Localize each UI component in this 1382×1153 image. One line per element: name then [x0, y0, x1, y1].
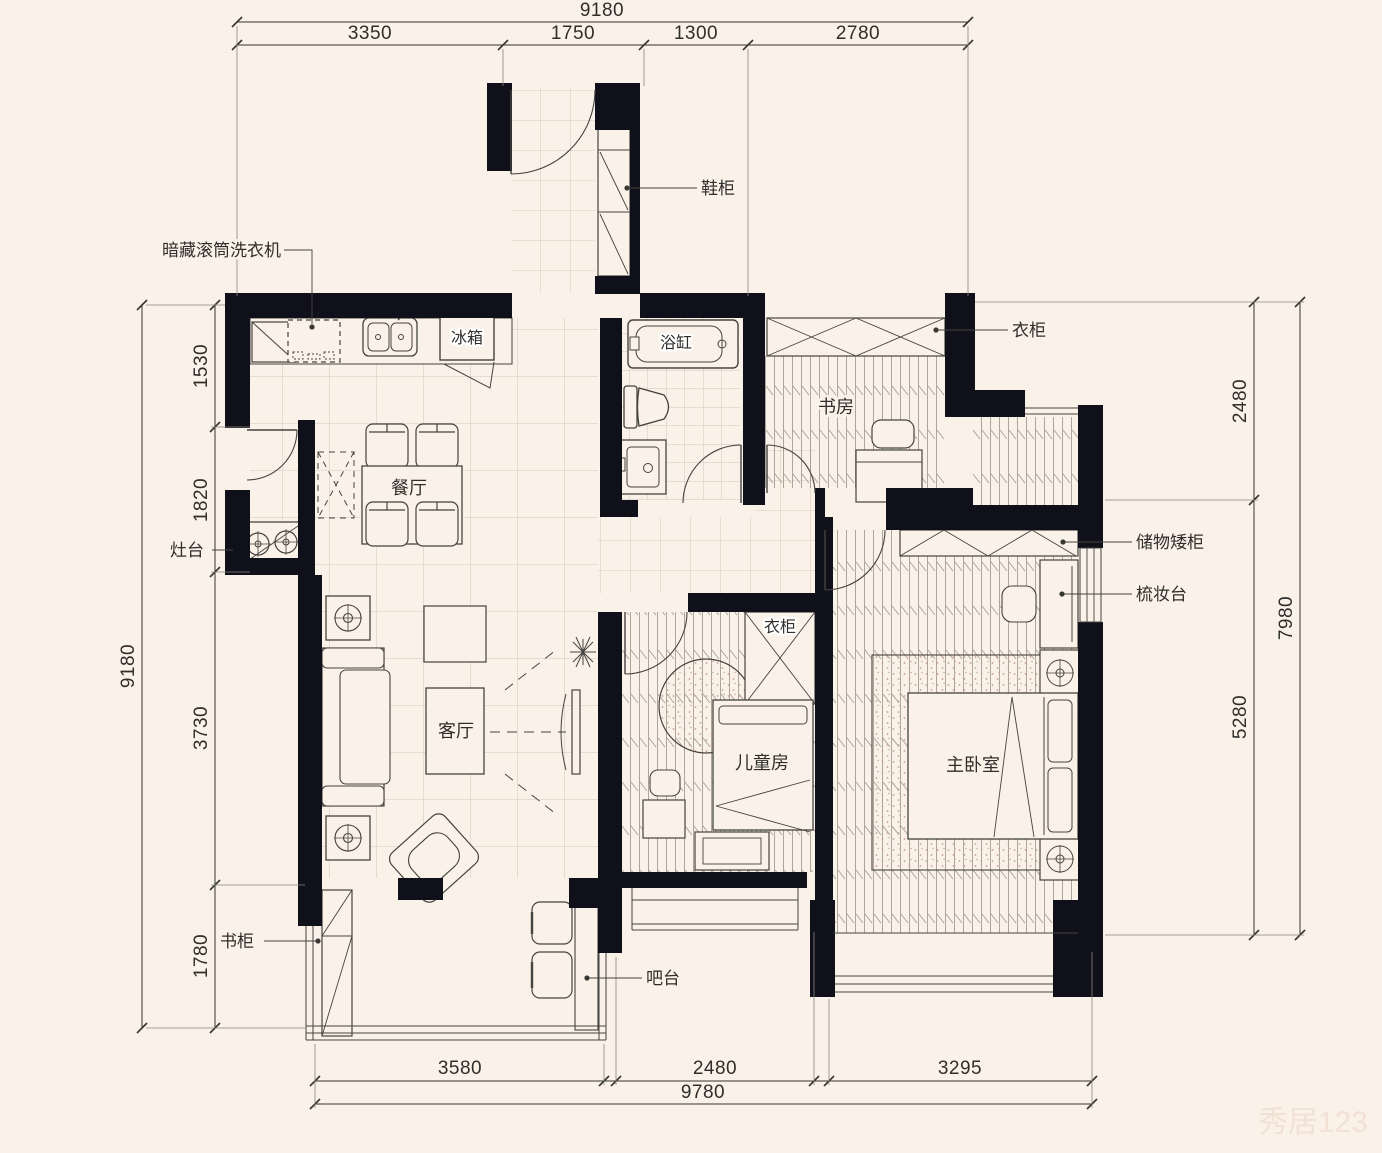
dressing-stool — [1002, 586, 1036, 622]
speaker — [326, 816, 370, 860]
sofa — [322, 648, 390, 806]
pillow — [1048, 700, 1072, 762]
speaker — [326, 596, 370, 640]
master-bedroom-label: 主卧室 — [946, 755, 1000, 775]
study-chair — [872, 420, 914, 448]
study-wardrobe-label: 衣柜 — [1012, 321, 1046, 340]
wall — [688, 593, 815, 612]
bar-stool — [532, 952, 572, 998]
wall — [622, 872, 807, 888]
dining-room-label: 餐厅 — [391, 478, 427, 498]
dim-left-seg: 1530 — [191, 344, 212, 388]
dim-right-total: 7980 — [1276, 596, 1297, 640]
washer-label: 暗藏滚筒洗衣机 — [162, 241, 281, 260]
wall — [225, 293, 512, 318]
dim-top-seg: 1300 — [674, 23, 718, 44]
wall — [595, 276, 640, 294]
wall — [600, 500, 638, 517]
dim-top-seg: 1750 — [551, 23, 595, 44]
shoe-cabinet — [598, 128, 630, 276]
wall — [945, 293, 975, 393]
dim-top-seg: 2780 — [836, 23, 880, 44]
wall — [630, 128, 640, 278]
nightstand — [1040, 838, 1080, 880]
dim-top-total: 9180 — [580, 0, 624, 21]
dim-right-seg: 5280 — [1230, 695, 1251, 739]
wall — [225, 318, 250, 428]
bar-counter — [575, 898, 598, 1030]
bar-counter-label: 吧台 — [646, 969, 680, 988]
wall — [945, 390, 1025, 417]
wall — [886, 488, 973, 507]
kids-desk — [643, 800, 685, 838]
study-wardrobe — [767, 318, 945, 356]
stove-label: 灶台 — [170, 541, 204, 560]
dim-left-seg: 1820 — [191, 478, 212, 522]
bookcase — [322, 890, 352, 1036]
wall — [298, 575, 322, 926]
wall — [1053, 900, 1103, 997]
kids-stool — [650, 770, 680, 796]
watermark: 秀居123 — [1258, 1106, 1368, 1139]
kids-room-label: 儿童房 — [735, 753, 789, 773]
wall — [595, 83, 640, 130]
dim-left-total: 9180 — [118, 644, 139, 688]
dim-bottom-seg: 3580 — [438, 1058, 482, 1079]
wall — [886, 505, 1103, 530]
dim-left-seg: 3730 — [191, 706, 212, 750]
wall — [815, 517, 833, 935]
wall — [600, 318, 622, 505]
entry-fixtures — [598, 128, 630, 276]
bathtub-label: 浴缸 — [660, 333, 692, 352]
wall — [487, 83, 512, 171]
storage-low-cabinet — [900, 530, 1078, 556]
closet-nook-floor — [973, 417, 1078, 505]
dining-chair — [366, 502, 408, 546]
wall — [298, 420, 315, 568]
side-table — [424, 606, 486, 662]
wall — [569, 878, 619, 908]
dining-chair — [416, 502, 458, 546]
fridge-label: 冰箱 — [451, 329, 483, 347]
nightstand — [1040, 650, 1080, 696]
master-window — [1080, 548, 1101, 622]
dim-left-seg: 1780 — [191, 934, 212, 978]
floor-plan-canvas: 9180 3350 1750 1300 2780 9180 1530 1820 … — [0, 0, 1382, 1153]
bookcase-label: 书柜 — [220, 932, 254, 951]
dim-top-seg: 3350 — [348, 23, 392, 44]
dim-bottom-total: 9780 — [681, 1082, 725, 1103]
living-room-label: 客厅 — [438, 721, 474, 741]
study-room-label: 书房 — [818, 397, 854, 417]
wall — [1078, 622, 1103, 935]
pillow — [1048, 768, 1072, 832]
dining-chair — [366, 424, 408, 468]
dim-right-seg: 2480 — [1230, 379, 1251, 423]
kitchen-sink — [363, 312, 417, 356]
wall — [1078, 405, 1103, 548]
bar-stool — [532, 902, 572, 944]
shoe-cabinet-label: 鞋柜 — [701, 179, 735, 198]
dressing-table-label: 梳妆台 — [1136, 585, 1187, 604]
dim-bottom-seg: 3295 — [938, 1058, 982, 1079]
wall — [743, 293, 765, 505]
kids-wardrobe-label: 衣柜 — [764, 618, 796, 636]
wall — [398, 878, 443, 900]
dining-chair — [416, 424, 458, 468]
dim-bottom-seg: 2480 — [693, 1058, 737, 1079]
wall — [640, 293, 743, 318]
storage-cabinet-label: 储物矮柜 — [1136, 533, 1204, 552]
bathroom-sink — [616, 440, 666, 494]
